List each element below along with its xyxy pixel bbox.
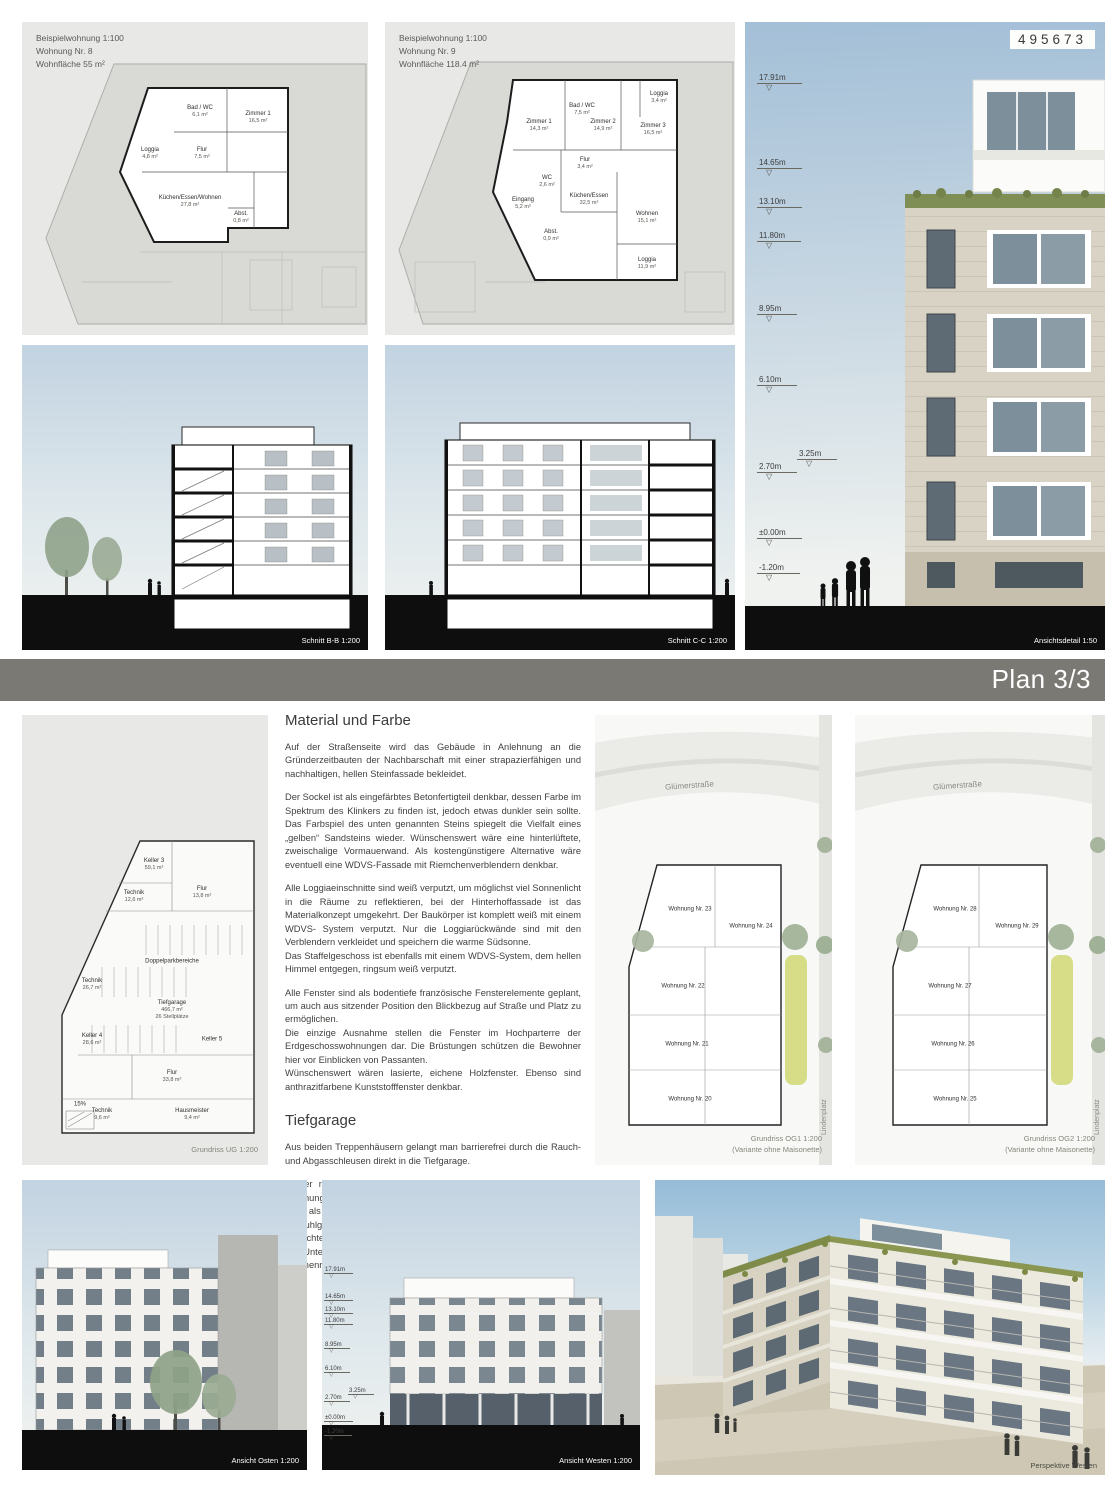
section-bb-panel: Schnitt B-B 1:200 — [22, 345, 368, 650]
grundriss-og2-panel: Glümerstraße Lindenplatz Wohnung Nr. 25 … — [855, 715, 1105, 1165]
family-silhouettes — [821, 557, 871, 606]
ramp-slope-label: 15% — [74, 1101, 86, 1108]
elevation-east-panel: Ansicht Osten 1:200 — [22, 1180, 307, 1470]
building-elevation — [390, 1298, 602, 1394]
level-marker: 6.10m▽ — [757, 375, 797, 393]
platz-label: Lindenplatz — [1094, 1099, 1101, 1135]
plan-panel-wohnung9: Beispielwohnung 1:100 Wohnung Nr. 9 Wohn… — [385, 22, 735, 335]
room-label: Flur33,8 m² — [163, 1070, 182, 1084]
room-label: Loggia4,8 m² — [141, 147, 159, 161]
unit-label: Wohnung Nr. 22 — [661, 983, 704, 990]
section-cc-panel: Schnitt C-C 1:200 — [385, 345, 735, 650]
elevation-west-drawing — [322, 1180, 640, 1470]
ug-floorplan-drawing — [22, 715, 268, 1165]
header-line: Wohnung Nr. 8 — [36, 45, 124, 58]
room-label: Keller 428,6 m² — [82, 1033, 102, 1047]
panel-caption: Grundriss OG1 1:200(Variante ohne Maison… — [732, 1134, 822, 1155]
grundriss-og1-panel: Glümerstraße Lindenplatz Wohnung Nr. 20 … — [595, 715, 832, 1165]
plan-banner: Plan 3/3 — [0, 659, 1105, 701]
tree — [1048, 924, 1074, 950]
penthouse — [48, 1250, 168, 1268]
unit-label: Wohnung Nr. 20 — [668, 1096, 711, 1103]
neighbor-building — [278, 1265, 307, 1430]
room-label: Keller 5 — [202, 1036, 222, 1043]
header-line: Wohnfläche 55 m² — [36, 58, 124, 71]
room-label: Abst.0,9 m² — [543, 229, 559, 243]
unit-label: Wohnung Nr. 29 — [995, 923, 1038, 930]
elevation-west-panel: 17.91m▽ 14.65m▽ 13.10m▽ 11.80m▽ 8.95m▽ 6… — [322, 1180, 640, 1470]
room-label: Flur3,4 m² — [577, 157, 593, 171]
building-section — [172, 427, 352, 595]
neighbor-building — [604, 1310, 640, 1425]
building-section — [445, 423, 715, 595]
level-marker: 13.10m▽ — [757, 197, 802, 215]
room-label: Küchen/Essen32,5 m² — [570, 193, 609, 207]
panel-caption: Ansicht Westen 1:200 — [559, 1456, 632, 1465]
paragraph: Alle Fenster sind als bodentiefe französ… — [285, 987, 581, 1095]
level-marker: 8.95m▽ — [324, 1342, 350, 1354]
room-label: Küchen/Essen/Wohnen27,8 m² — [159, 195, 222, 209]
right-facade — [830, 1214, 1083, 1444]
level-marker: 14.65m▽ — [324, 1294, 353, 1306]
room-label: Doppelparkbereiche — [145, 958, 199, 965]
header-line: Beispielwohnung 1:100 — [36, 32, 124, 45]
basement-section — [447, 599, 713, 629]
level-marker: 14.65m▽ — [757, 158, 802, 176]
basement-section — [174, 599, 350, 629]
plan-number: Plan 3/3 — [992, 664, 1091, 695]
section-cc-drawing — [385, 345, 735, 650]
section-bb-drawing — [22, 345, 368, 650]
section-heading-material: Material und Farbe — [285, 712, 581, 729]
trees — [45, 517, 122, 597]
grundriss-ug-panel: Keller 359,1 m² Technik12,6 m² Flur13,8 … — [22, 715, 268, 1165]
paragraph: Auf der Straßenseite wird das Gebäude in… — [285, 741, 581, 781]
panel-caption: Schnitt C-C 1:200 — [668, 636, 727, 645]
tree — [782, 924, 808, 950]
room-label: Zimmer 114,3 m² — [526, 119, 551, 133]
plan-header: Beispielwohnung 1:100 Wohnung Nr. 8 Wohn… — [36, 32, 124, 72]
courtyard-green — [785, 955, 807, 1085]
room-label: Zimmer 116,5 m² — [245, 111, 270, 125]
level-marker: 3.25m▽ — [797, 449, 837, 467]
level-marker: 11.80m▽ — [324, 1318, 353, 1330]
unit-label: Wohnung Nr. 26 — [931, 1041, 974, 1048]
perspective-render — [655, 1180, 1105, 1475]
unit-label: Wohnung Nr. 24 — [729, 923, 772, 930]
unit-label: Wohnung Nr. 27 — [928, 983, 971, 990]
room-label: Zimmer 214,9 m² — [590, 119, 615, 133]
figures — [148, 579, 161, 595]
level-marker: 17.91m▽ — [324, 1267, 353, 1279]
room-label: Bad / WC7,5 m² — [569, 103, 595, 117]
paragraph: Alle Loggiaeinschnitte sind weiß verputz… — [285, 882, 581, 976]
unit-label: Wohnung Nr. 21 — [665, 1041, 708, 1048]
plan-header: Beispielwohnung 1:100 Wohnung Nr. 9 Wohn… — [399, 32, 487, 72]
room-label: Bad / WC6,1 m² — [187, 105, 213, 119]
room-label: Keller 359,1 m² — [144, 858, 164, 872]
paragraph: Der Sockel ist als eingefärbtes Betonfer… — [285, 791, 581, 872]
level-marker: ±0.00m▽ — [324, 1415, 353, 1427]
project-id-badge: 495673 — [1010, 30, 1095, 49]
level-marker: -1.20m▽ — [324, 1429, 352, 1441]
section-heading-tiefgarage: Tiefgarage — [285, 1112, 581, 1129]
building-footprint — [893, 865, 1047, 1125]
perspective-panel: Perspektive Westen — [655, 1180, 1105, 1475]
header-line: Wohnung Nr. 9 — [399, 45, 487, 58]
presentation-board: Beispielwohnung 1:100 Wohnung Nr. 8 Wohn… — [0, 0, 1116, 1500]
room-label: Loggia11,9 m² — [638, 257, 656, 271]
street — [595, 732, 832, 811]
level-marker: 2.70m▽ — [324, 1395, 350, 1407]
panel-caption: Ansichtsdetail 1:50 — [1034, 636, 1097, 645]
level-marker: ±0.00m▽ — [757, 528, 802, 546]
header-line: Wohnfläche 118.4 m² — [399, 58, 487, 71]
panel-caption: Grundriss UG 1:200 — [191, 1145, 258, 1156]
room-label: Hausmeister9,4 m² — [175, 1108, 209, 1122]
room-label: Zimmer 316,5 m² — [640, 123, 665, 137]
room-label: Technik12,6 m² — [124, 890, 144, 904]
level-marker: 6.10m▽ — [324, 1366, 350, 1378]
panel-caption: Schnitt B-B 1:200 — [302, 636, 360, 645]
panel-caption: Grundriss OG2 1:200(Variante ohne Maison… — [1005, 1134, 1095, 1155]
plan-panel-wohnung8: Beispielwohnung 1:100 Wohnung Nr. 8 Wohn… — [22, 22, 368, 335]
facade-detail-panel: 495673 17.91m▽ 14.65m▽ 13.10m▽ 11.80m▽ 8… — [745, 22, 1105, 650]
level-marker: 3.25m▽ — [348, 1388, 374, 1400]
garage-label: Tiefgarage466,7 m²26 Stellplätze — [155, 1000, 188, 1020]
unit-label: Wohnung Nr. 23 — [668, 906, 711, 913]
room-label: Eingang5,2 m² — [512, 197, 534, 211]
platz-label: Lindenplatz — [821, 1099, 828, 1135]
header-line: Beispielwohnung 1:100 — [399, 32, 487, 45]
panel-caption: Perspektive Westen — [1030, 1461, 1097, 1470]
penthouse — [404, 1278, 574, 1298]
elevation-east-drawing — [22, 1180, 307, 1470]
room-label: Flur13,8 m² — [193, 886, 212, 900]
street — [855, 732, 1105, 811]
room-label: Technik9,6 m² — [92, 1108, 112, 1122]
tree — [896, 930, 918, 952]
unit-label: Wohnung Nr. 25 — [933, 1096, 976, 1103]
level-marker: 2.70m▽ — [757, 462, 797, 480]
panel-caption: Ansicht Osten 1:200 — [231, 1456, 299, 1465]
level-marker: 17.91m▽ — [757, 73, 802, 91]
courtyard-green — [1051, 955, 1073, 1085]
room-label: Abst.0,8 m² — [233, 211, 249, 225]
room-label: Flur7,5 m² — [194, 147, 210, 161]
penthouse-window — [987, 92, 1075, 150]
room-label: Technik26,7 m² — [82, 978, 102, 992]
facade-detail-drawing — [745, 22, 1105, 650]
ground-floor-glazing — [390, 1394, 602, 1425]
level-marker: 8.95m▽ — [757, 304, 797, 322]
level-marker: 11.80m▽ — [757, 231, 801, 249]
paragraph: Aus beiden Treppenhäusern gelangt man ba… — [285, 1141, 581, 1168]
unit-label: Wohnung Nr. 28 — [933, 906, 976, 913]
room-label: WC2,6 m² — [539, 175, 555, 189]
level-marker: -1.20m▽ — [757, 563, 800, 581]
room-label: Wohnen15,1 m² — [636, 211, 658, 225]
room-label: Loggia3,4 m² — [650, 91, 668, 105]
tree — [632, 930, 654, 952]
